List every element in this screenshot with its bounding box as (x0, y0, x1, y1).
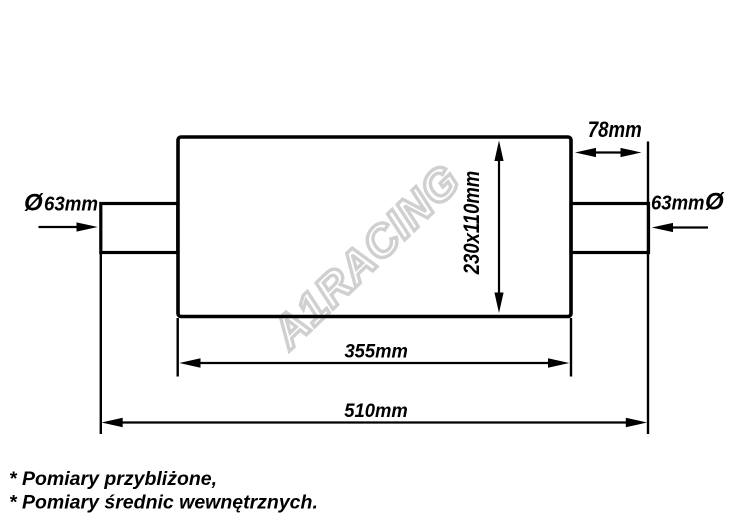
svg-text:63mm: 63mm (44, 194, 98, 216)
svg-text:Ø: Ø (24, 190, 44, 217)
svg-text:510mm: 510mm (344, 400, 408, 422)
svg-text:63mm: 63mm (651, 193, 705, 215)
svg-text:230x110mm: 230x110mm (459, 171, 484, 275)
svg-text:* Pomiary przybliżone,: * Pomiary przybliżone, (9, 468, 217, 490)
svg-text:78mm: 78mm (588, 117, 642, 142)
svg-text:355mm: 355mm (344, 341, 408, 363)
svg-text:Ø: Ø (705, 189, 725, 216)
svg-text:* Pomiary średnic wewnętrznych: * Pomiary średnic wewnętrznych. (9, 492, 318, 514)
